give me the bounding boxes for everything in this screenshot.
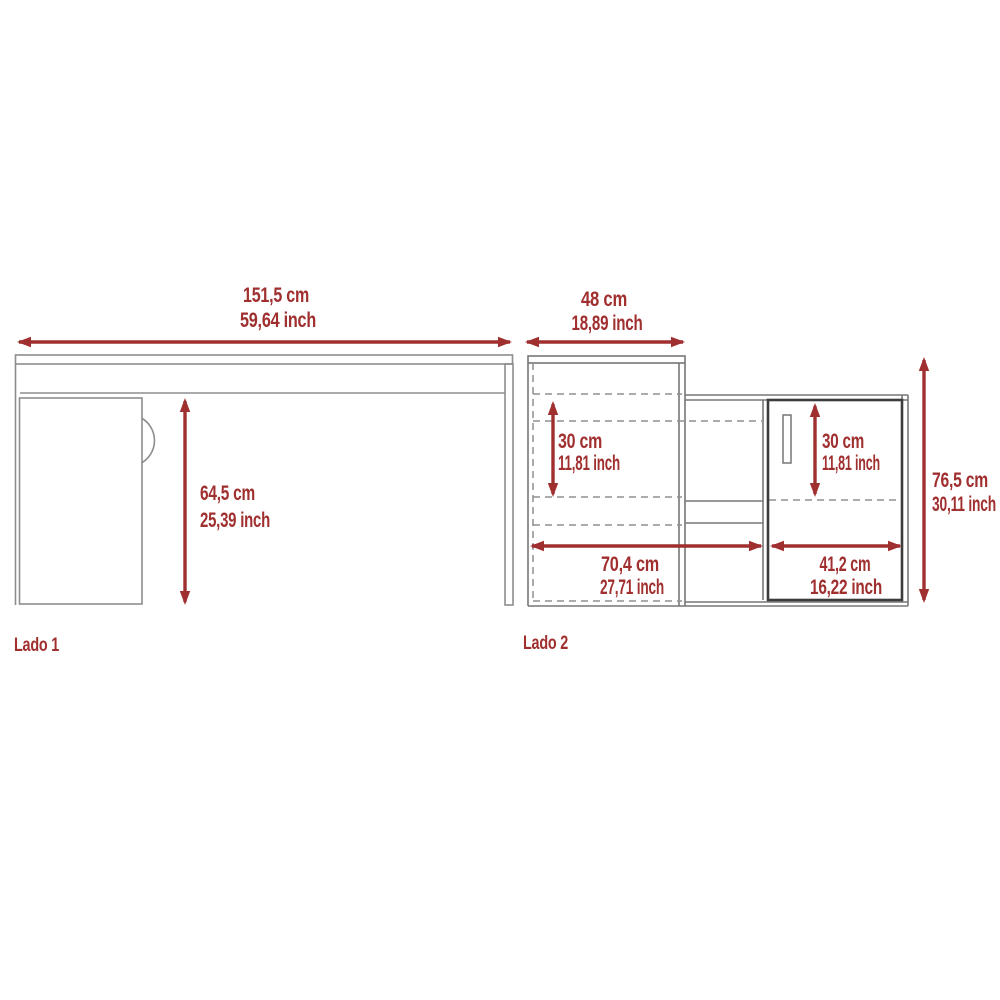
side2-height-inch: 30,11 inch (932, 493, 996, 516)
desk-cabinet-door (20, 398, 143, 604)
arrowhead-left (17, 337, 31, 347)
side1-width-dimension: 151,5 cm 59,64 inch (17, 284, 512, 347)
desk-tabletop (16, 355, 513, 364)
side2-left-shelf-dimension: 30 cm 11,81 inch (548, 401, 620, 497)
side2-height-dimension: 76,5 cm 30,11 inch (919, 357, 996, 603)
arrowhead-down (810, 483, 820, 497)
desk-right-side-panel (505, 364, 513, 605)
l-shaped-desk-dimension-diagram: 151,5 cm 59,64 inch 64,5 cm 25,39 inch L… (0, 0, 1000, 1000)
side2-bottom-left-width-dimension: 70,4 cm 27,71 inch (530, 541, 763, 599)
desk-door-handle-arc (142, 418, 155, 463)
cabinet-door-handle (783, 415, 791, 463)
arrowhead-up (180, 398, 190, 412)
arrowhead-down (919, 589, 929, 603)
side2-right-shelf-inch: 11,81 inch (822, 452, 880, 475)
arrowhead-left (530, 541, 544, 551)
arrowhead-up (919, 357, 929, 371)
side2-label: Lado 2 (523, 633, 568, 654)
side2-bottom-left-cm: 70,4 cm (601, 553, 659, 576)
side2-left-shelf-cm: 30 cm (558, 430, 602, 453)
side2-top-width-inch: 18,89 inch (572, 312, 643, 335)
side2-bottom-left-inch: 27,71 inch (600, 576, 664, 599)
side1-width-inch: 59,64 inch (240, 309, 316, 332)
side2-bottom-right-width-dimension: 41,2 cm 16,22 inch (770, 541, 902, 599)
arrowhead-up (810, 403, 820, 417)
side2-height-cm: 76,5 cm (932, 469, 988, 492)
side2-bottom-right-inch: 16,22 inch (810, 576, 882, 599)
side1-width-cm: 151,5 cm (243, 284, 309, 307)
hutch-top-panel (528, 356, 685, 363)
side2-top-width-cm: 48 cm (581, 288, 627, 311)
side2-bottom-right-cm: 41,2 cm (820, 553, 871, 576)
arrowhead-left (525, 337, 539, 347)
furniture-dimension-sheet: 151,5 cm 59,64 inch 64,5 cm 25,39 inch L… (0, 0, 1000, 1000)
arrowhead-up (548, 401, 558, 415)
side1-label: Lado 1 (14, 635, 60, 656)
side2-right-shelf-cm: 30 cm (822, 430, 864, 453)
side2-left-shelf-inch: 11,81 inch (558, 452, 620, 475)
side2-top-width-dimension: 48 cm 18,89 inch (525, 288, 685, 347)
side1-height-cm: 64,5 cm (200, 482, 255, 505)
arrowhead-right (498, 337, 512, 347)
side2-right-shelf-dimension: 30 cm 11,81 inch (810, 403, 880, 497)
arrowhead-down (180, 591, 190, 605)
side1-height-inch: 25,39 inch (200, 509, 270, 532)
arrowhead-right (671, 337, 685, 347)
arrowhead-down (548, 483, 558, 497)
side1-desk-drawing (16, 355, 514, 605)
arrowhead-right (888, 541, 902, 551)
arrowhead-left (770, 541, 784, 551)
arrowhead-right (749, 541, 763, 551)
side1-height-dimension: 64,5 cm 25,39 inch (180, 398, 270, 605)
